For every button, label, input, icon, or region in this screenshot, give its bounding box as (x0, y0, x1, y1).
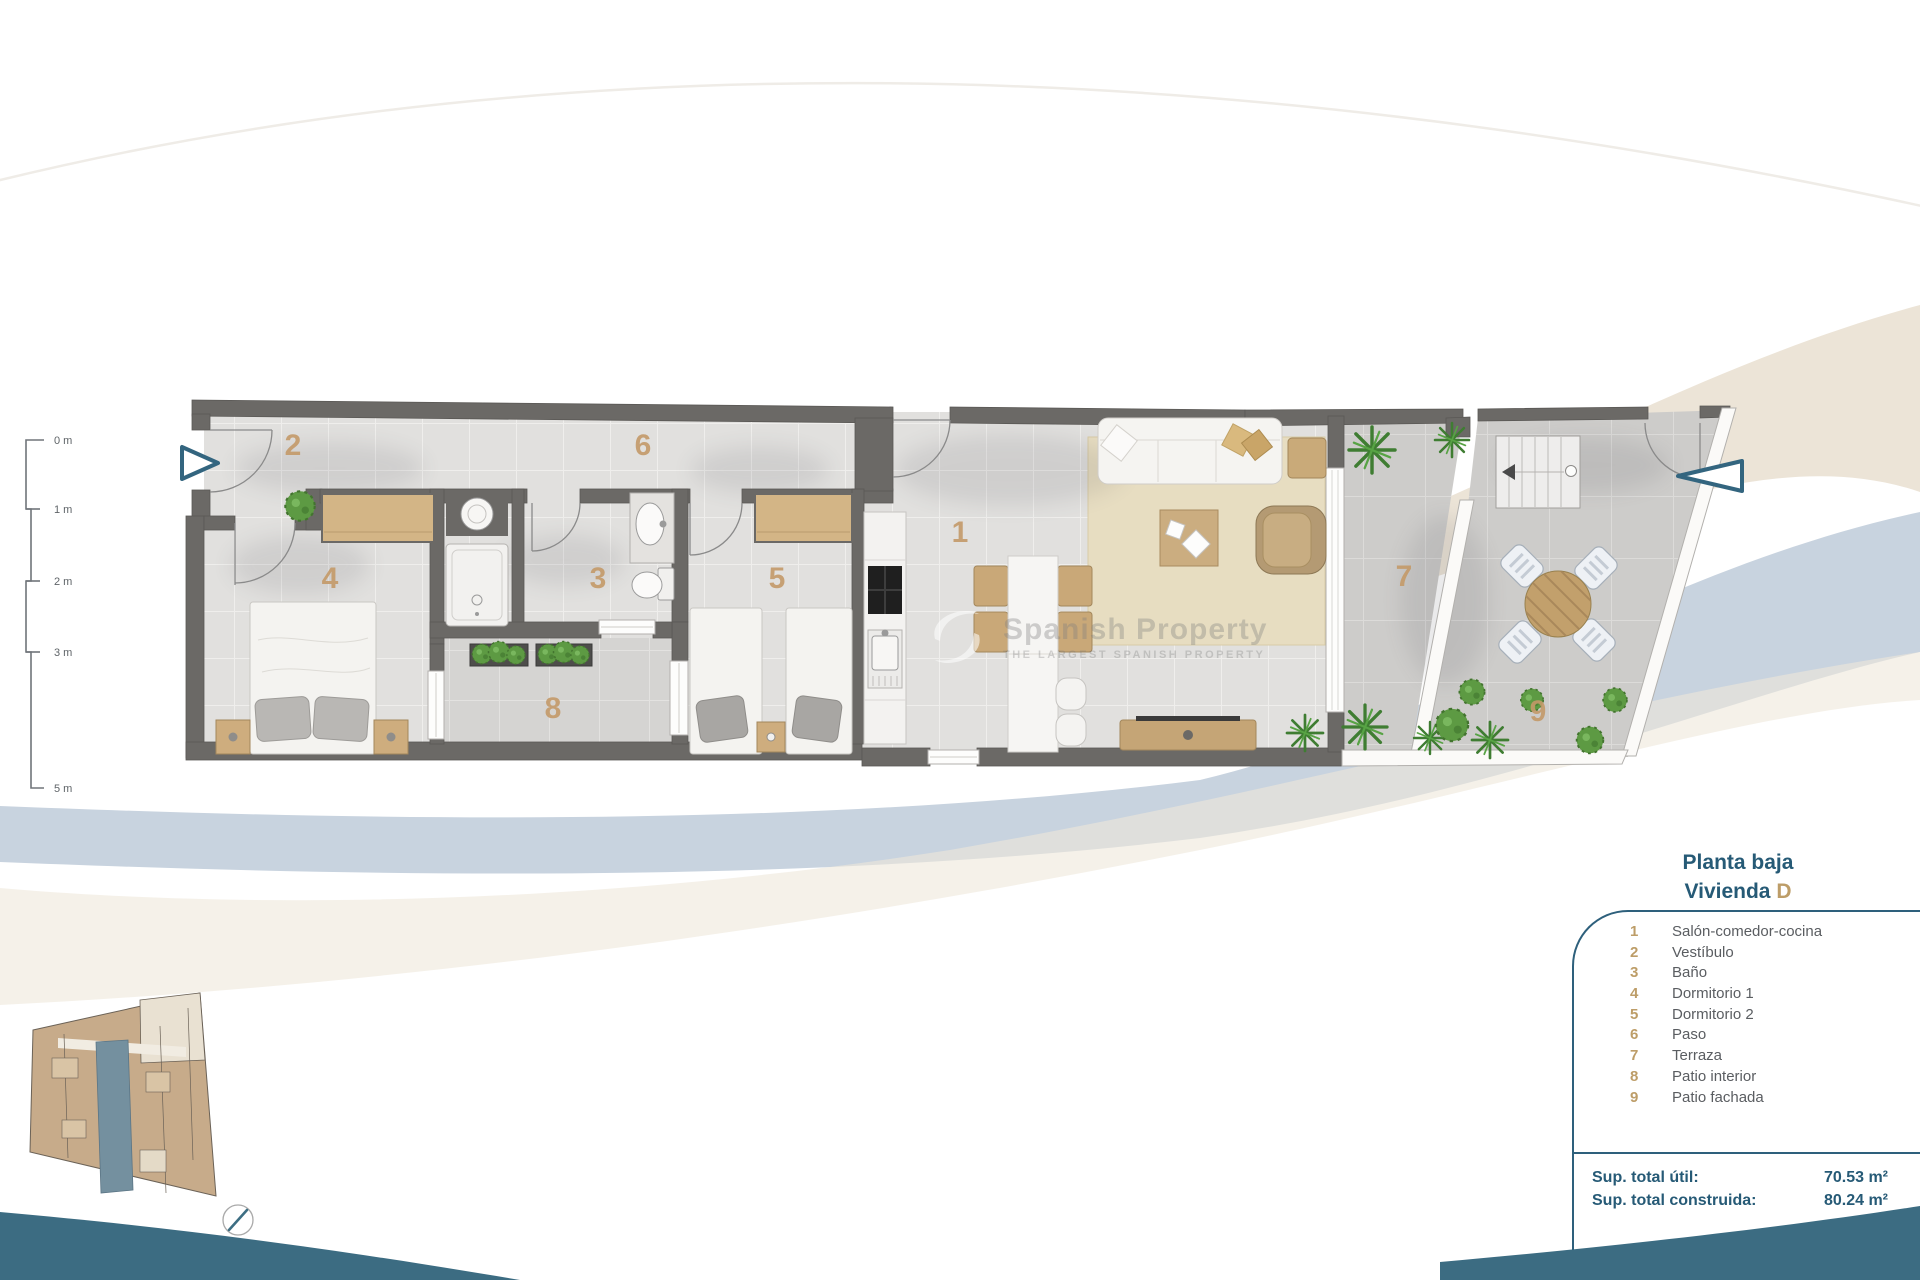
dining-chair (1058, 612, 1092, 652)
legend-item: 4Dormitorio 1 (1630, 984, 1910, 1005)
scale-tick-1: 1 m (54, 504, 72, 516)
compass-icon (223, 1205, 253, 1235)
scale-tick-3: 3 m (54, 647, 72, 659)
totals: Sup. total útil: 70.53 m² Sup. total con… (1592, 1166, 1888, 1212)
legend-item: 6Paso (1630, 1025, 1910, 1046)
legend-item: 3Baño (1630, 963, 1910, 984)
pillow (695, 695, 748, 743)
room-number-4: 4 (322, 562, 339, 595)
wardrobe (755, 494, 852, 542)
room-number-5: 5 (769, 562, 786, 595)
totals-divider (1572, 1152, 1920, 1154)
unit-letter: D (1776, 880, 1791, 903)
key-plan (30, 993, 216, 1196)
faucet (882, 630, 889, 637)
legend-item: 2Vestíbulo (1630, 943, 1910, 964)
pillow (255, 696, 312, 742)
scale-tick-2: 2 m (54, 576, 72, 588)
scale-tick-4: 5 m (54, 783, 72, 795)
armchair-seat (1263, 513, 1311, 567)
legend-item: 9Patio fachada (1630, 1088, 1910, 1109)
page: 0 m 1 m 2 m 3 m 5 m (0, 0, 1920, 1280)
legend-item: 7Terraza (1630, 1046, 1910, 1067)
vestibule-plant (285, 491, 314, 520)
pillow (313, 696, 370, 742)
toilet-bowl (632, 572, 662, 598)
wave-bottom-left (0, 1212, 520, 1280)
living-terrace-glass (1326, 468, 1344, 712)
total-useful: Sup. total útil: 70.53 m² (1592, 1166, 1888, 1189)
kitchen (864, 512, 906, 744)
stairs (1496, 436, 1580, 508)
stool (1056, 714, 1086, 746)
room-number-1: 1 (952, 516, 969, 549)
dining-chair (1058, 566, 1092, 606)
legend: 1Salón-comedor-cocina 2Vestíbulo 3Baño 4… (1630, 922, 1910, 1108)
scale-bar-labels: 0 m 1 m 2 m 3 m 5 m (54, 435, 72, 795)
room-number-6: 6 (635, 429, 652, 462)
scale-tick-0: 0 m (54, 435, 72, 447)
plan-title-floor: Planta baja (1586, 848, 1890, 877)
room-number-3: 3 (590, 562, 607, 595)
plan-title: Planta baja Vivienda D (1586, 848, 1890, 906)
stool (1056, 678, 1086, 710)
round-basin (461, 498, 493, 530)
stairs-post (1566, 466, 1577, 477)
legend-item: 5Dormitorio 2 (1630, 1005, 1910, 1026)
room-number-9: 9 (1530, 695, 1547, 728)
faucet (660, 521, 667, 528)
room-number-7: 7 (1396, 560, 1413, 593)
kitchen-counter (864, 512, 906, 744)
highlighted-unit (96, 1040, 133, 1193)
side-table (1288, 438, 1326, 478)
room-number-8: 8 (545, 692, 562, 725)
pillow (791, 695, 842, 743)
room-number-2: 2 (285, 429, 302, 462)
plan-title-unit-line: Vivienda D (1586, 877, 1890, 906)
dining-chair (974, 566, 1008, 606)
scale-bar (26, 440, 44, 788)
total-built: Sup. total construida: 80.24 m² (1592, 1189, 1888, 1212)
legend-item: 8Patio interior (1630, 1067, 1910, 1088)
wardrobe (322, 494, 434, 542)
dining-chair (974, 612, 1008, 652)
tv (1136, 716, 1240, 721)
legend-item: 1Salón-comedor-cocina (1630, 922, 1910, 943)
